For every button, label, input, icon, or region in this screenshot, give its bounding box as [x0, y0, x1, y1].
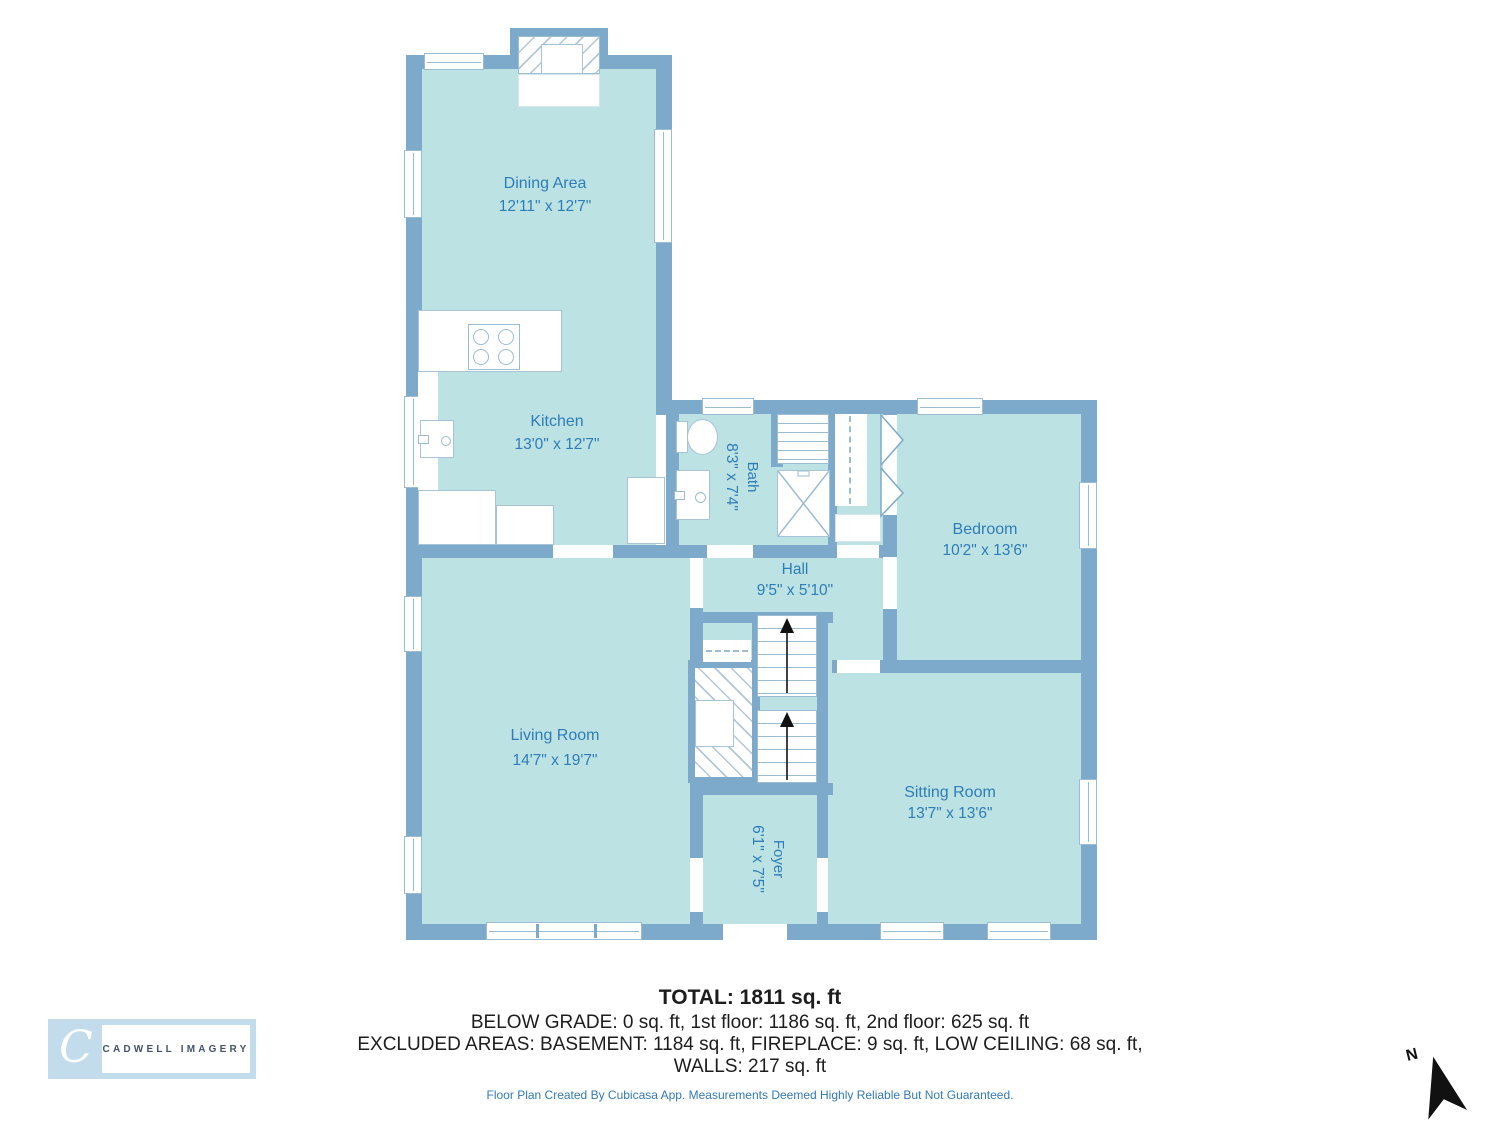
room-label-hall: Hall 9'5" x 5'10": [695, 559, 895, 601]
kitchen-counter: [418, 490, 496, 545]
room-dims: 13'7" x 13'6": [830, 803, 1070, 824]
room-dining-kitchen: [422, 69, 656, 545]
room-label-kitchen: Kitchen 13'0" x 12'7": [437, 410, 677, 456]
room-dims: 9'5" x 5'10": [695, 580, 895, 601]
logo-text-box: CADWELL IMAGERY: [102, 1025, 250, 1073]
refrigerator: [627, 477, 665, 544]
window: [404, 836, 422, 894]
firebox: [695, 700, 734, 747]
floor-plan: Dining Area 12'11" x 12'7" Kitchen 13'0"…: [0, 0, 1500, 1125]
stair-arrow-icon: [757, 615, 817, 697]
room-label-living-room: Living Room 14'7" x 19'7": [425, 723, 685, 773]
firebox: [541, 44, 583, 74]
room-label-foyer: Foyer 6'1" x 7'5": [747, 789, 789, 929]
room-hall-ext: [828, 612, 883, 660]
window: [917, 398, 983, 415]
closet-dashed: [703, 640, 751, 662]
summary-total: TOTAL: 1811 sq. ft: [0, 986, 1500, 1010]
sink-vanity-icon: [676, 470, 710, 520]
room-dims: 12'11" x 12'7": [425, 195, 665, 218]
room-dims: 13'0" x 12'7": [437, 433, 677, 456]
door-opening: [837, 660, 880, 673]
room-name: Bath: [742, 407, 763, 547]
toilet-icon: [687, 419, 718, 455]
room-name: Hall: [695, 559, 895, 580]
door-opening: [817, 858, 828, 912]
shower-icon: [777, 470, 830, 537]
stairs-upper-landing: [777, 414, 829, 464]
room-name: Dining Area: [425, 172, 665, 195]
logo-monogram: C: [48, 1019, 104, 1079]
room-label-sitting-room: Sitting Room 13'7" x 13'6": [830, 782, 1070, 824]
room-label-bedroom: Bedroom 10'2" x 13'6": [865, 519, 1105, 561]
room-name: Bedroom: [865, 519, 1105, 540]
bifold-door-icon: [880, 413, 905, 519]
wall: [817, 612, 828, 783]
hearth: [518, 74, 600, 107]
window: [880, 922, 944, 940]
footer-disclaimer: Floor Plan Created By Cubicasa App. Meas…: [0, 1088, 1500, 1102]
window-mullion: [536, 924, 539, 938]
window: [486, 922, 642, 940]
stove-icon: [468, 324, 520, 370]
cadwell-imagery-logo: C CADWELL IMAGERY: [48, 1019, 256, 1079]
window: [1079, 779, 1097, 845]
north-label: N: [1404, 1046, 1419, 1065]
window: [404, 150, 422, 218]
kitchen-island: [496, 505, 554, 545]
window: [424, 53, 484, 70]
room-dims: 6'1" x 7'5": [747, 789, 768, 929]
wall: [406, 545, 883, 558]
window: [404, 596, 422, 652]
room-name: Foyer: [768, 789, 789, 929]
room-dims: 8'3" x 7'4": [721, 407, 742, 547]
door-opening: [690, 858, 703, 912]
room-label-dining-area: Dining Area 12'11" x 12'7": [425, 172, 665, 218]
room-name: Kitchen: [437, 410, 677, 433]
room-name: Living Room: [425, 723, 685, 748]
window-mullion: [594, 924, 597, 938]
room-dims: 10'2" x 13'6": [865, 540, 1105, 561]
stair-arrow-icon: [757, 710, 817, 783]
closet-dashed: [835, 414, 867, 506]
room-name: Sitting Room: [830, 782, 1070, 803]
room-dims: 14'7" x 19'7": [425, 748, 685, 773]
room-label-bath: Bath 8'3" x 7'4": [721, 407, 763, 547]
window: [987, 922, 1051, 940]
door-opening: [553, 545, 613, 558]
logo-text: CADWELL IMAGERY: [103, 1044, 250, 1055]
